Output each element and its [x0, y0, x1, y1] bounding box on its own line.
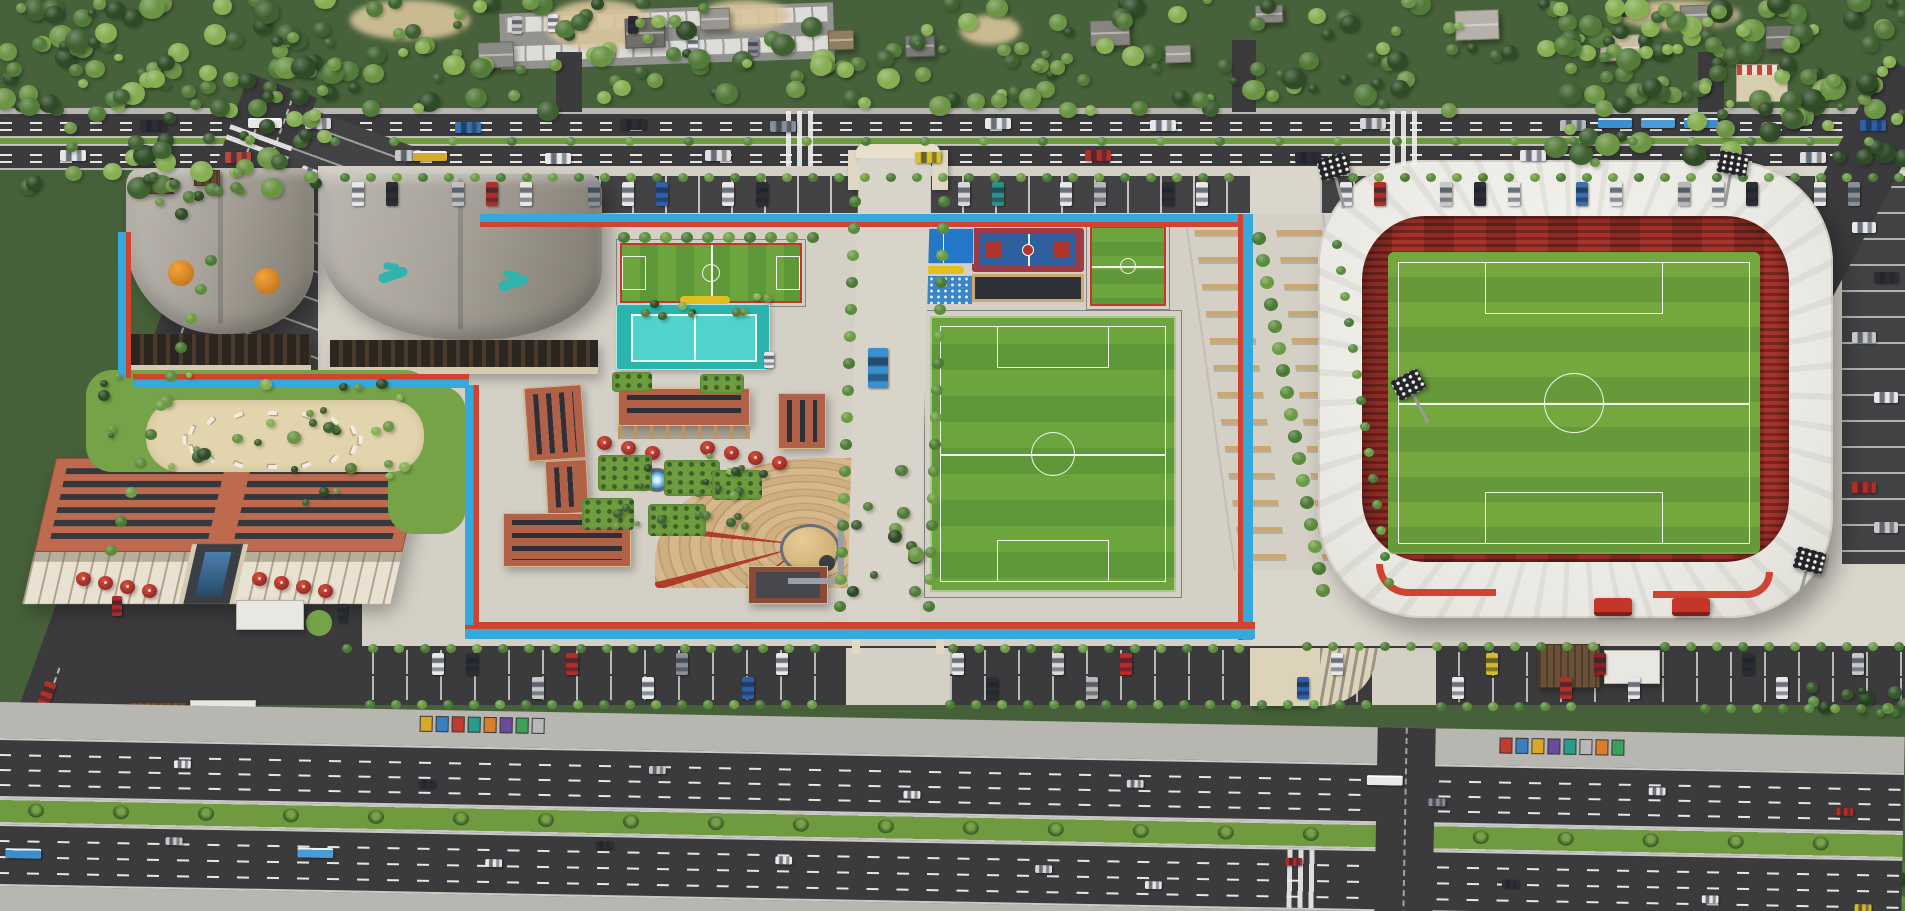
billboard [1515, 738, 1528, 754]
billboard [484, 717, 497, 733]
lane-marking [0, 769, 1903, 806]
floodlight-pole [1334, 175, 1346, 209]
top-layer [0, 0, 1905, 911]
bus [297, 847, 333, 858]
billboard [436, 716, 449, 732]
car [1145, 881, 1162, 889]
car [775, 856, 792, 864]
billboard [468, 717, 481, 733]
bus [5, 848, 41, 859]
floodlight-head [1716, 150, 1749, 177]
billboard [1611, 740, 1624, 756]
car [1702, 895, 1719, 903]
billboard [1563, 739, 1576, 755]
car [1836, 808, 1853, 816]
car [1649, 787, 1666, 795]
south-boulevard [0, 702, 1905, 911]
car [1285, 858, 1302, 866]
billboard [1547, 738, 1560, 754]
car [649, 766, 666, 774]
billboard [1499, 737, 1512, 753]
lane-marking [0, 856, 1902, 893]
floodlight-head [1792, 546, 1827, 575]
car [1127, 780, 1144, 788]
car [1035, 865, 1052, 873]
billboard [452, 716, 465, 732]
car [1428, 798, 1445, 806]
car [174, 760, 191, 768]
bus [1367, 775, 1403, 786]
billboard [500, 717, 513, 733]
car [419, 780, 436, 788]
floodlight-pole [1797, 569, 1809, 603]
floodlight-pole [1411, 392, 1430, 423]
floodlight-head [1316, 152, 1351, 181]
floodlight-head [1390, 368, 1427, 402]
aerial-sports-complex-render [0, 0, 1905, 911]
car [1854, 904, 1871, 911]
boulevard-cross-street [1374, 727, 1436, 911]
car [1502, 880, 1519, 888]
car [485, 859, 502, 867]
car [595, 841, 612, 849]
billboard [516, 717, 529, 733]
billboard [1595, 739, 1608, 755]
billboard [420, 716, 433, 732]
floodlight-pole [1723, 172, 1732, 206]
billboard [1579, 739, 1592, 755]
car [165, 837, 182, 845]
billboard [532, 718, 545, 734]
car [903, 791, 920, 799]
billboard [1531, 738, 1544, 754]
